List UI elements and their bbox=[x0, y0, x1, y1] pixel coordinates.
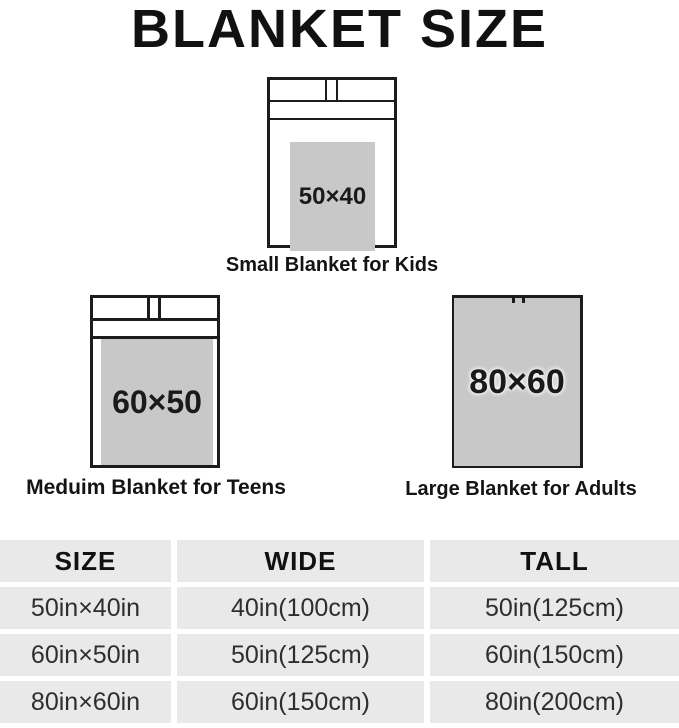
blanket-size-label: 60×50 bbox=[112, 384, 202, 421]
table-cell-wide-row1: 40in(100cm) bbox=[177, 587, 424, 629]
bed-sheet-band bbox=[93, 321, 217, 339]
caption-medium-blanket: Meduim Blanket for Teens bbox=[0, 475, 312, 501]
bed-sheet-band bbox=[270, 102, 394, 120]
table-header-wide: WIDE bbox=[177, 540, 424, 582]
size-table: SIZE WIDE TALL 50in×40in 40in(100cm) 50i… bbox=[0, 540, 679, 723]
bed-diagram-medium: 60×50 bbox=[90, 295, 220, 468]
pillow-divider bbox=[158, 298, 161, 318]
blanket-size-label: 80×60 bbox=[469, 363, 565, 402]
pillow-divider bbox=[325, 80, 327, 100]
table-cell-tall-row2: 60in(150cm) bbox=[430, 634, 679, 676]
blanket-size-infographic: BLANKET SIZE 50×40 Small Blanket for Kid… bbox=[0, 0, 679, 728]
page-title: BLANKET SIZE bbox=[0, 0, 679, 58]
pillow-divider bbox=[336, 80, 338, 100]
table-cell-tall-row3: 80in(200cm) bbox=[430, 681, 679, 723]
table-cell-size-row3: 80in×60in bbox=[0, 681, 171, 723]
bed-pillow-band bbox=[270, 80, 394, 102]
table-header-tall: TALL bbox=[430, 540, 679, 582]
pillow-divider bbox=[147, 298, 150, 318]
blanket-small: 50×40 bbox=[290, 142, 375, 251]
pillow-divider bbox=[522, 298, 525, 303]
pillow-divider bbox=[512, 298, 515, 303]
table-cell-wide-row3: 60in(150cm) bbox=[177, 681, 424, 723]
bed-pillow-band bbox=[93, 298, 217, 321]
table-cell-wide-row2: 50in(125cm) bbox=[177, 634, 424, 676]
blanket-size-label: 50×40 bbox=[299, 183, 366, 211]
bed-diagram-large: 80×60 bbox=[452, 295, 583, 468]
caption-large-blanket: Large Blanket for Adults bbox=[370, 477, 672, 502]
table-header-size: SIZE bbox=[0, 540, 171, 582]
caption-small-blanket: Small Blanket for Kids bbox=[132, 253, 532, 277]
table-cell-size-row1: 50in×40in bbox=[0, 587, 171, 629]
table-cell-size-row2: 60in×50in bbox=[0, 634, 171, 676]
bed-diagram-small: 50×40 bbox=[267, 77, 397, 248]
table-cell-tall-row1: 50in(125cm) bbox=[430, 587, 679, 629]
blanket-medium: 60×50 bbox=[101, 339, 213, 465]
